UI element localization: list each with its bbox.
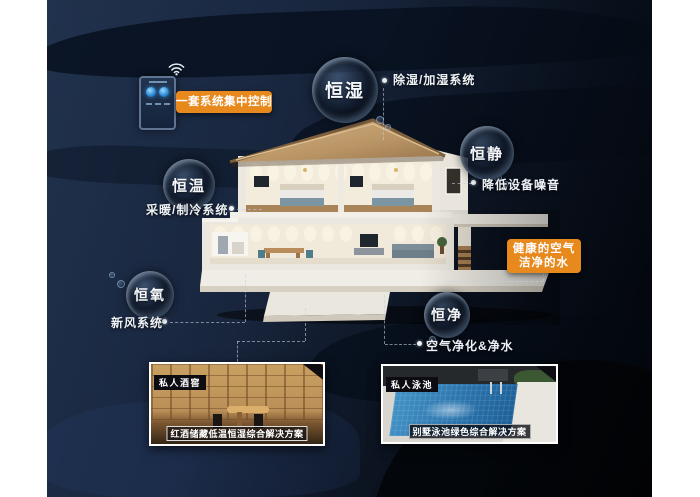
label-fresh-air-system: 新风系统 (111, 314, 163, 331)
callout-line2: 洁净的水 (507, 256, 581, 270)
smart-home-infographic: 一套系统集中控制 恒湿 恒静 恒温 恒氧 恒净 除湿/加湿系统 降低设备噪音 采… (0, 0, 700, 497)
connector-humidity (383, 88, 384, 140)
healthy-air-water-callout: 健康的空气 洁净的水 (507, 239, 581, 273)
phone-dial-knob (159, 87, 169, 97)
connector-dot (417, 341, 422, 346)
bubble-label: 恒静 (470, 143, 504, 164)
connector-freshair (170, 322, 245, 323)
page-margin-left (0, 0, 47, 497)
phone-stat (146, 103, 152, 105)
photo-tag-wine-cellar: 私人酒窖 (154, 375, 206, 390)
connector-purify (385, 344, 416, 345)
bubble-label: 恒温 (172, 175, 206, 196)
bubble-constant-purity: 恒净 (424, 292, 470, 338)
phone-stat (164, 103, 170, 105)
connector-dot (382, 78, 387, 83)
bubble-label: 恒净 (431, 305, 463, 325)
phone-dial-knob (146, 87, 156, 97)
deco-bubble (109, 272, 115, 278)
photo-tag-pool: 私人泳池 (386, 377, 438, 392)
connector-health (447, 281, 543, 282)
bubble-constant-quiet: 恒静 (460, 126, 514, 180)
label-noise-reduction: 降低设备噪音 (482, 176, 560, 193)
bubble-label: 恒氧 (134, 285, 166, 305)
label-heating-cooling-system: 采暖/制冷系统 (146, 201, 228, 218)
bubble-label: 恒湿 (325, 77, 365, 103)
deco-bubble (376, 116, 384, 124)
photo-caption-pool: 别墅泳池绿色综合解决方案 (408, 424, 530, 439)
photo-wine-cellar: 私人酒窖 红酒储藏低温恒湿综合解决方案 (149, 362, 325, 446)
wine-table-leg (237, 412, 242, 426)
connector-purify (384, 295, 385, 344)
connector-winecellar (237, 341, 305, 342)
control-phone (139, 76, 176, 130)
photo-private-pool: 私人泳池 别墅泳池绿色综合解决方案 (381, 364, 558, 444)
label-air-water-purification: 空气净化&净水 (426, 337, 514, 354)
central-control-label: 一套系统集中控制 (176, 91, 272, 113)
connector-winecellar (305, 308, 306, 341)
wifi-icon (168, 61, 185, 76)
page-margin-right (652, 0, 700, 497)
phone-stat (155, 103, 161, 105)
connector-dot (229, 206, 234, 211)
phone-screen-header (149, 81, 167, 83)
deco-bubble (117, 280, 125, 288)
connector-dot (471, 180, 476, 185)
deco-bubble (385, 124, 391, 130)
bubble-constant-oxygen: 恒氧 (126, 271, 174, 319)
connector-winecellar (237, 341, 238, 362)
connector-freshair (245, 275, 246, 322)
label-dehumidify-system: 除湿/加湿系统 (393, 71, 475, 88)
connector-temperature (237, 209, 262, 210)
pool-ladder (490, 382, 502, 394)
wine-table (227, 406, 269, 413)
scene-background: 一套系统集中控制 恒湿 恒静 恒温 恒氧 恒净 除湿/加湿系统 降低设备噪音 采… (0, 0, 700, 497)
photo-caption-wine-cellar: 红酒储藏低温恒湿综合解决方案 (166, 426, 307, 441)
bubble-constant-humidity: 恒湿 (312, 57, 378, 123)
callout-line1: 健康的空气 (507, 242, 581, 256)
pool-building (478, 369, 508, 381)
connector-quiet (452, 183, 472, 184)
